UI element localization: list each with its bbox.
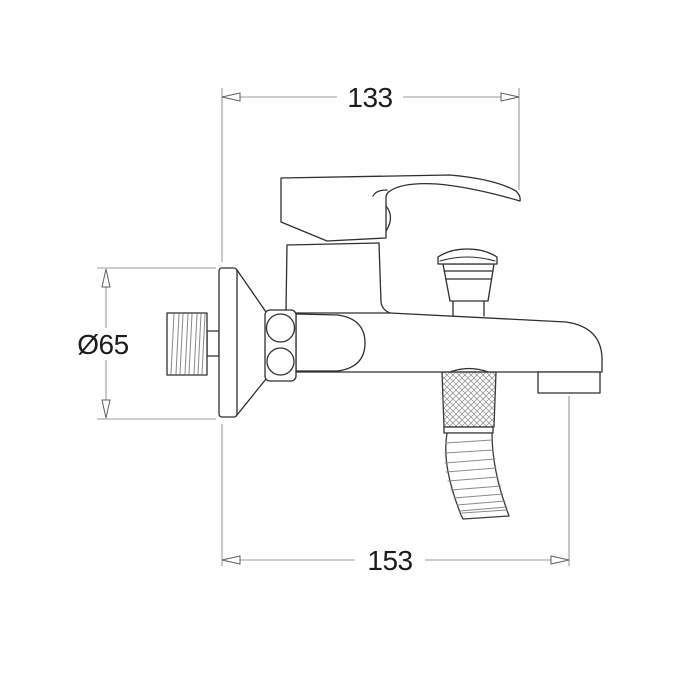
dimension-label-bottom-reach: 153 xyxy=(367,545,412,576)
arrowhead-right xyxy=(501,93,519,101)
mounting-union xyxy=(265,310,296,381)
spout-body xyxy=(296,313,602,372)
connector-stem xyxy=(207,331,219,356)
thread-connector xyxy=(167,313,207,375)
union-nut-top xyxy=(267,314,295,342)
lever-handle xyxy=(281,175,520,241)
faucet-dimension-drawing: 133 153 Ø65 xyxy=(0,0,700,700)
dimension-label-flange-diameter: Ø65 xyxy=(77,329,128,360)
shower-hose xyxy=(445,433,509,519)
cartridge-neck xyxy=(286,243,390,313)
aerator-outlet xyxy=(538,372,600,393)
faucet-drawing xyxy=(167,175,602,519)
dimension-bottom-reach: 153 xyxy=(222,396,569,576)
diverter-knob xyxy=(438,249,497,316)
union-nut-bottom xyxy=(267,348,294,375)
wall-flange xyxy=(219,268,266,417)
arrowhead-left xyxy=(222,93,240,101)
arrowhead-right xyxy=(551,556,569,564)
arrowhead-left xyxy=(222,556,240,564)
technical-drawing-page: 133 153 Ø65 xyxy=(0,0,700,700)
hose-nut xyxy=(442,369,496,434)
diverter-body xyxy=(443,264,494,301)
dimension-label-top-width: 133 xyxy=(347,82,392,113)
handle-pivot-bump xyxy=(386,206,391,231)
diverter-stem xyxy=(453,301,484,316)
arrowhead-down xyxy=(102,400,110,418)
arrowhead-up xyxy=(102,269,110,287)
